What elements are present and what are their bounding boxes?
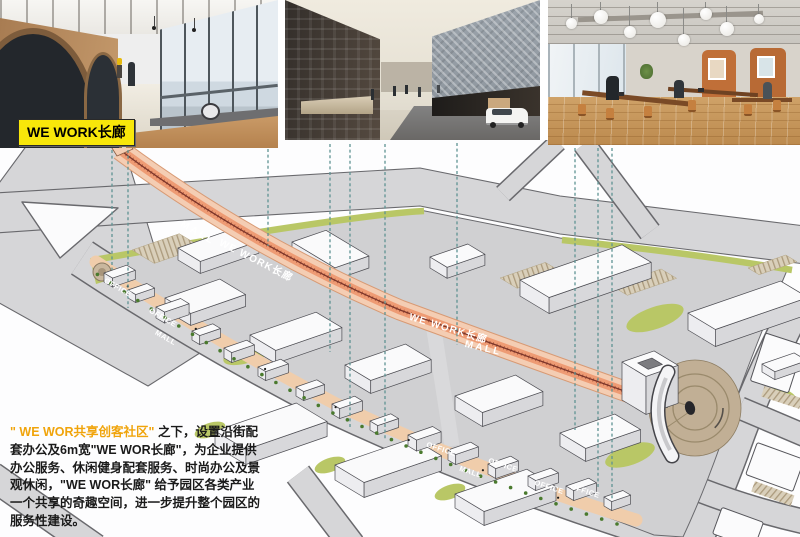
photo-street-view [285,0,540,140]
p3-globe-lamp [754,14,764,24]
presentation-board: WE WORK长廊 [0,0,800,537]
p3-globe-lamp [678,34,690,46]
p3-globe-lamp [594,10,608,24]
p3-chair [688,100,696,112]
p2-pedestrian [437,85,440,93]
p2-pedestrian [393,86,396,96]
photo-coworking-space [548,0,800,145]
description-highlight: " WE WOR共享创客社区" [10,425,154,439]
description-text: " WE WOR共享创客社区" 之下，设置沿街配套办公及6m宽"WE WOR长廊… [10,424,262,531]
p3-art-frame [757,56,775,78]
p3-lamp-stem [657,2,658,12]
p3-chair [606,108,614,120]
p3-globe-lamp [720,22,734,36]
p3-person [763,82,772,99]
p3-chair [578,104,586,116]
p2-car-wheel [518,122,524,128]
p3-lamp-stem [726,6,727,22]
p3-laptop [698,88,704,92]
p3-globe-lamp [700,8,712,20]
p2-pedestrian [405,85,408,94]
p2-pedestrian [418,87,421,97]
p3-person [674,80,684,98]
p3-globe-lamp [650,12,666,28]
p3-lamp-stem [571,4,572,18]
p1-pillow [201,103,220,120]
p3-lamp-stem [758,4,759,14]
p1-lamp-stem [154,16,155,26]
description-bold: "WE WOR长廊" [60,478,151,492]
p3-person [606,76,619,100]
p3-globe-lamp [624,26,636,38]
p1-person [128,62,135,86]
p3-globe-lamp [566,18,577,29]
p3-laptop [618,92,624,96]
p3-plant [640,64,653,79]
p3-chair [644,106,652,118]
p3-chair [773,100,781,112]
p1-lamp-stem [194,18,195,28]
p1-person-yellow-body [117,65,122,78]
p3-lamp-stem [629,6,630,26]
wework-corridor-tag: WE WORK长廊 [18,119,135,146]
p3-table [732,98,792,102]
p2-pedestrian [371,89,374,100]
description-bold: "WE WOR长廊" [91,443,182,457]
p3-chair [744,104,752,116]
p1-person-yellow-top [117,58,122,65]
p2-car-wheel [490,122,496,128]
p3-lamp-stem [683,8,684,34]
p1-pendant-lamp [192,28,196,32]
p1-pendant-lamp [152,26,156,30]
p3-art-frame [708,58,726,80]
p3-lamp-stem [600,2,601,10]
p2-car-window [492,109,512,115]
